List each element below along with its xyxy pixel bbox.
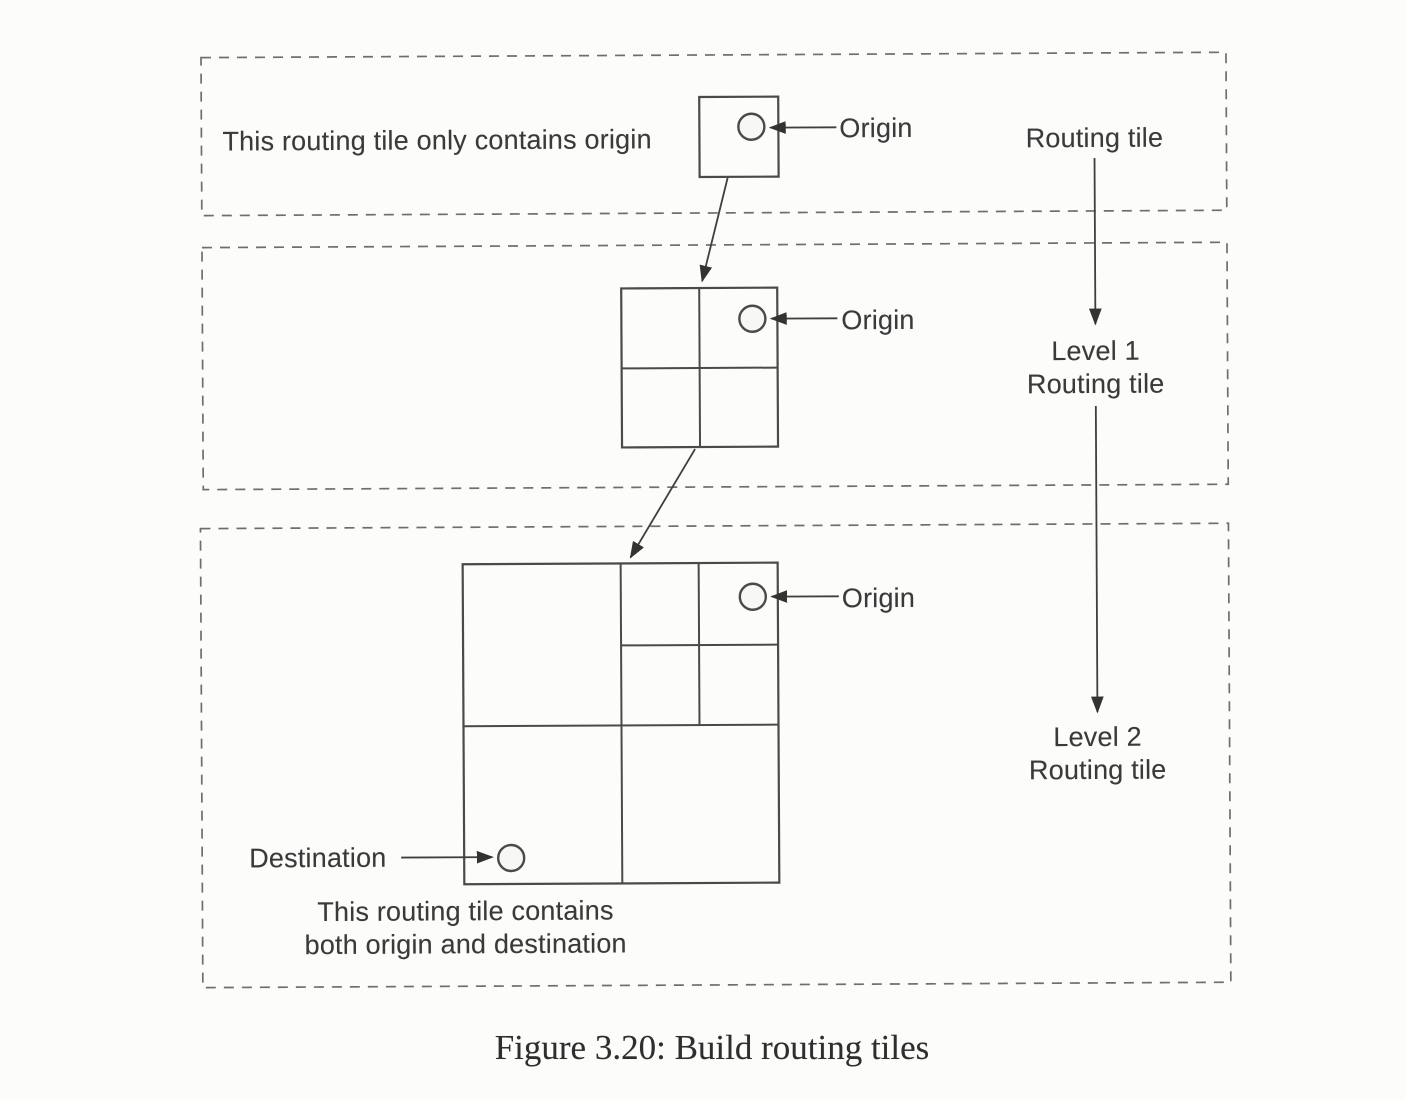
routing-tile-root-label: Routing tile	[1026, 122, 1164, 156]
level2-tile-horizontal-divider	[463, 725, 778, 727]
origin-label-level1: Origin	[841, 304, 914, 337]
level1-routing-tile-label: Level 1 Routing tile	[1027, 335, 1165, 402]
figure-caption: Figure 3.20: Build routing tiles	[495, 1028, 930, 1068]
level2-panel-note: This routing tile contains both origin a…	[304, 894, 626, 962]
level2-note-line2: both origin and destination	[304, 927, 626, 962]
destination-marker-level2	[498, 845, 524, 871]
diagram-canvas	[0, 0, 1406, 1100]
level2-routing-tile-label: Level 2 Routing tile	[1029, 721, 1167, 788]
origin-marker-level2	[740, 584, 766, 610]
scanned-book-page: This routing tile only contains origin O…	[0, 0, 1406, 1100]
hierarchy-arrow-level1-to-level2	[1096, 406, 1098, 712]
origin-marker-level0	[738, 114, 764, 140]
level2-label-line: Level 2	[1029, 721, 1167, 755]
level2-tile	[463, 563, 780, 885]
level0-tile	[699, 97, 778, 177]
level2-tile-vertical-divider	[621, 563, 623, 883]
origin-label-level0: Origin	[839, 112, 912, 145]
hierarchy-arrow-root-to-level1	[1095, 158, 1096, 324]
level0-panel-note: This routing tile only contains origin	[222, 123, 651, 158]
level1-label-line: Level 1	[1027, 335, 1165, 369]
level1-sublabel-line: Routing tile	[1027, 368, 1165, 402]
arrow-level0-to-level1	[702, 178, 729, 281]
origin-marker-level1	[739, 306, 765, 332]
level2-sublabel-line: Routing tile	[1029, 754, 1167, 788]
level1-tile-horizontal-divider	[622, 368, 778, 369]
origin-label-level2: Origin	[842, 582, 915, 615]
arrow-level1-to-level2	[630, 449, 696, 557]
routing-tiles-diagram: This routing tile only contains origin O…	[0, 0, 1406, 1100]
level2-note-line1: This routing tile contains	[304, 894, 626, 929]
level2-subtile-horizontal-divider	[621, 645, 778, 646]
destination-label: Destination	[249, 842, 386, 876]
